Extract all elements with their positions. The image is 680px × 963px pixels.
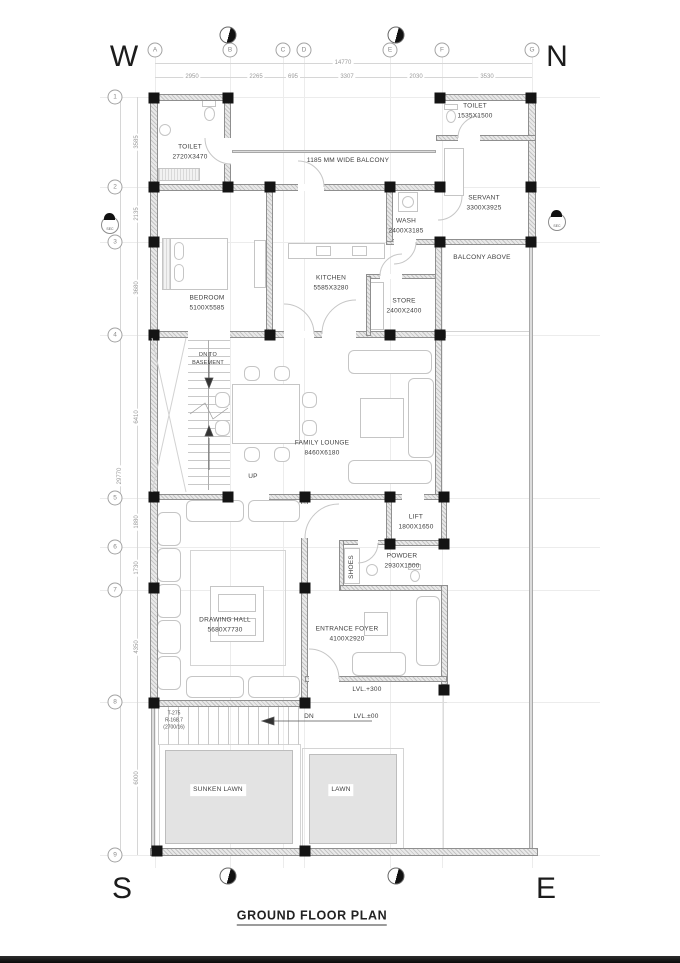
pillow (174, 242, 184, 260)
door-opening (224, 138, 231, 164)
grid-row-bubble-6: 6 (108, 540, 123, 555)
column (435, 330, 446, 341)
wc-icon (204, 107, 215, 121)
room-size: 5100X5585 (189, 303, 224, 313)
grid-row-bubble-3: 3 (108, 235, 123, 250)
dimension-label: 3585 (134, 133, 140, 150)
room-label-wash: WASH 2400X3185 (388, 216, 423, 236)
floor-plan-canvas: A B C D E F G 1 2 3 4 5 6 7 8 9 SEC SEC … (0, 0, 680, 963)
column (223, 93, 234, 104)
room-label-lift: LIFT 1800X1650 (398, 512, 433, 532)
room-name: ENTRANCE FOYER (316, 624, 379, 634)
dimension-label: 3680 (134, 279, 140, 296)
door-opening (435, 196, 442, 220)
dimension-label: 1880 (134, 513, 140, 530)
dining-chair (244, 366, 260, 381)
kitchen-sink (316, 246, 331, 256)
room-size: 2720X3470 (172, 152, 207, 162)
section-marker-label: SEC (102, 227, 118, 231)
wall (266, 184, 273, 338)
window-edge-bar (0, 956, 680, 963)
bed-headboard (162, 238, 171, 290)
compass-north-label: N (546, 40, 568, 74)
wall (528, 94, 536, 246)
dimension-label: 14770 (333, 60, 354, 66)
grid-col-bubble-c: C (276, 43, 291, 58)
dining-chair (274, 447, 290, 462)
lawn-area (309, 754, 397, 844)
dimension-label: 6410 (134, 408, 140, 425)
room-size: 8460X6180 (295, 448, 349, 458)
grid-col-bubble-g: G (525, 43, 540, 58)
dimension-label: 1730 (134, 559, 140, 576)
wall (366, 276, 371, 336)
section-marker-icon (220, 27, 237, 44)
washing-machine-drum (402, 196, 414, 208)
room-size: 5585X3280 (313, 283, 348, 293)
dimension-label: 6000 (134, 769, 140, 786)
room-size: 2930X1500 (384, 561, 419, 571)
compass-south-label: S (112, 872, 132, 906)
column (300, 846, 311, 857)
room-name: TOILET (457, 101, 492, 111)
dining-chair (274, 366, 290, 381)
grid-row-bubble-1: 1 (108, 90, 123, 105)
grid-col-bubble-d: D (297, 43, 312, 58)
door-opening (458, 135, 480, 141)
sofa (408, 378, 434, 458)
wall (436, 135, 536, 141)
vanity (158, 168, 200, 181)
grid-row-bubble-8: 8 (108, 695, 123, 710)
balcony-railing (232, 150, 436, 153)
sofa (157, 620, 181, 654)
wall (150, 700, 308, 707)
stair-note: T-275 R-168.7 (2700/16) (163, 711, 184, 732)
grid-col-bubble-a: A (148, 43, 163, 58)
column (385, 492, 396, 503)
table-inset (218, 594, 256, 612)
section-marker-icon: SEC (101, 216, 119, 234)
wc-tank (202, 100, 216, 107)
room-name: FAMILY LOUNGE (295, 438, 349, 448)
wall (441, 585, 448, 685)
stair-tread-note: T-275 (163, 711, 184, 718)
room-name: STORE (386, 296, 421, 306)
wall (150, 848, 538, 856)
door-opening (358, 540, 378, 545)
dn-label: DN (304, 712, 314, 722)
column (300, 583, 311, 594)
door-opening (301, 504, 308, 538)
basin-icon (366, 564, 378, 576)
dimension-label: 2030 (407, 74, 424, 80)
sofa (248, 676, 300, 698)
sofa (348, 350, 432, 374)
lvl-ground-label: LVL.±00 (353, 712, 378, 722)
column (300, 492, 311, 503)
room-size: 4100X2920 (316, 634, 379, 644)
sofa (157, 584, 181, 618)
shoes-label: SHOES (347, 555, 357, 579)
wall (150, 94, 232, 101)
dining-chair (302, 392, 317, 408)
store-shelf (369, 282, 384, 330)
pillow (174, 264, 184, 282)
sofa (157, 512, 181, 546)
dimension-label: 4350 (134, 638, 140, 655)
column (149, 93, 160, 104)
column (265, 330, 276, 341)
column (435, 237, 446, 248)
room-label-toilet-2: TOILET 1535X1500 (457, 101, 492, 121)
wall (339, 540, 344, 591)
dn-to-line: DN TO (192, 351, 224, 359)
grid-col-bubble-e: E (383, 43, 398, 58)
passage-opening (233, 494, 269, 500)
kitchen-counter (288, 243, 385, 259)
room-name: KITCHEN (313, 273, 348, 283)
dimension-label: 2265 (247, 74, 264, 80)
basin-icon (159, 124, 171, 136)
wall (150, 184, 440, 191)
sofa (157, 548, 181, 582)
dining-table (232, 384, 300, 444)
column (149, 492, 160, 503)
room-label-kitchen: KITCHEN 5585X3280 (313, 273, 348, 293)
room-name: BEDROOM (189, 293, 224, 303)
section-marker-arrow (104, 213, 115, 220)
dining-chair (244, 447, 260, 462)
dimension-label: 2950 (183, 74, 200, 80)
column (439, 492, 450, 503)
stair-count-note: (2700/16) (163, 725, 184, 732)
sofa (157, 656, 181, 690)
room-label-entrance-foyer: ENTRANCE FOYER 4100X2920 (316, 624, 379, 644)
column (385, 330, 396, 341)
wall (435, 242, 442, 500)
wc-icon (410, 570, 420, 582)
column (265, 182, 276, 193)
door-opening (322, 331, 356, 338)
room-size: 5680X7730 (199, 625, 251, 635)
room-label-family-lounge: FAMILY LOUNGE 8460X6180 (295, 438, 349, 458)
column (385, 539, 396, 550)
compass-west-label: W (110, 40, 138, 74)
basement-line: BASEMENT (192, 359, 224, 367)
section-marker-icon: SEC (548, 213, 566, 231)
column (152, 846, 163, 857)
column (300, 698, 311, 709)
grid-col-bubble-f: F (435, 43, 450, 58)
room-label-drawing-hall: DRAWING HALL 5680X7730 (199, 615, 251, 635)
section-marker-icon (388, 868, 405, 885)
wall (366, 274, 442, 279)
door-opening (380, 274, 402, 279)
sunken-lawn-area (165, 750, 293, 844)
room-name: POWDER (384, 551, 419, 561)
room-size: 2400X3185 (388, 226, 423, 236)
porch-edge-line (308, 702, 447, 703)
sofa (248, 500, 300, 522)
kitchen-hob (352, 246, 367, 256)
room-name: LIFT (398, 512, 433, 522)
column (439, 539, 450, 550)
section-marker-icon (388, 27, 405, 44)
column (149, 698, 160, 709)
drawing-title: GROUND FLOOR PLAN (237, 909, 387, 926)
room-size: 2400X2400 (386, 306, 421, 316)
balcony-above-label: BALCONY ABOVE (453, 253, 510, 263)
door-opening (284, 331, 314, 338)
wall (529, 246, 533, 855)
room-name: DRAWING HALL (199, 615, 251, 625)
stair-opening (188, 331, 230, 338)
grid-row-bubble-4: 4 (108, 328, 123, 343)
dining-chair (215, 420, 230, 436)
room-name: WASH (388, 216, 423, 226)
dimension-label: 2135 (134, 205, 140, 222)
dimension-label: 3530 (478, 74, 495, 80)
grid-row-bubble-2: 2 (108, 180, 123, 195)
room-label-toilet-1: TOILET 2720X3470 (172, 142, 207, 162)
column (385, 182, 396, 193)
column (149, 237, 160, 248)
stair-riser-note: R-168.7 (163, 718, 184, 725)
column (526, 182, 537, 193)
dn-to-basement-label: DN TO BASEMENT (192, 351, 224, 368)
sofa (186, 676, 244, 698)
dimension-label: 3307 (338, 74, 355, 80)
sofa (416, 596, 440, 666)
dimension-label: 695 (286, 74, 300, 80)
room-label-powder: POWDER 2930X1500 (384, 551, 419, 571)
section-marker-label: SEC (549, 224, 565, 228)
room-label-store: STORE 2400X2400 (386, 296, 421, 316)
door-opening (298, 184, 324, 191)
room-label-bedroom: BEDROOM 5100X5585 (189, 293, 224, 313)
door-opening (394, 239, 416, 245)
room-size: 1800X1650 (398, 522, 433, 532)
boundary-line (443, 682, 444, 848)
compass-east-label: E (536, 872, 556, 906)
grid-line (390, 43, 391, 868)
column (223, 492, 234, 503)
bench (352, 652, 406, 676)
bed (444, 148, 464, 196)
wall (151, 706, 155, 852)
dimension-label: 29770 (117, 466, 123, 487)
column (223, 182, 234, 193)
section-marker-arrow (551, 210, 562, 217)
column (439, 685, 450, 696)
room-name: TOILET (172, 142, 207, 152)
balcony-label: 1185 MM WIDE BALCONY (307, 156, 389, 166)
bed (162, 238, 228, 290)
grid-row-bubble-7: 7 (108, 583, 123, 598)
wall (340, 585, 447, 591)
lvl-entrance-label: LVL.+300 (352, 685, 381, 695)
grid-col-bubble-b: B (223, 43, 238, 58)
dining-chair (215, 392, 230, 408)
grid-row-bubble-5: 5 (108, 491, 123, 506)
dining-chair (302, 420, 317, 436)
wall (436, 94, 536, 101)
column (526, 93, 537, 104)
room-name: SERVANT (466, 193, 501, 203)
column (149, 330, 160, 341)
column (149, 583, 160, 594)
room-size: 1535X1500 (457, 111, 492, 121)
sofa (186, 500, 244, 522)
column (149, 182, 160, 193)
wc-icon (446, 110, 456, 123)
sunken-lawn-label: SUNKEN LAWN (190, 784, 246, 796)
column (435, 93, 446, 104)
entrance-opening (309, 676, 339, 682)
column (435, 182, 446, 193)
lawn-label: LAWN (328, 784, 353, 796)
coffee-table (360, 398, 404, 438)
dresser (254, 240, 266, 288)
lift-opening (402, 494, 424, 500)
grid-row-bubble-9: 9 (108, 848, 123, 863)
room-label-servant: SERVANT 3300X3925 (466, 193, 501, 213)
column (526, 237, 537, 248)
section-marker-icon (220, 868, 237, 885)
sofa (348, 460, 432, 484)
up-label: UP (248, 472, 257, 482)
room-size: 3300X3925 (466, 203, 501, 213)
